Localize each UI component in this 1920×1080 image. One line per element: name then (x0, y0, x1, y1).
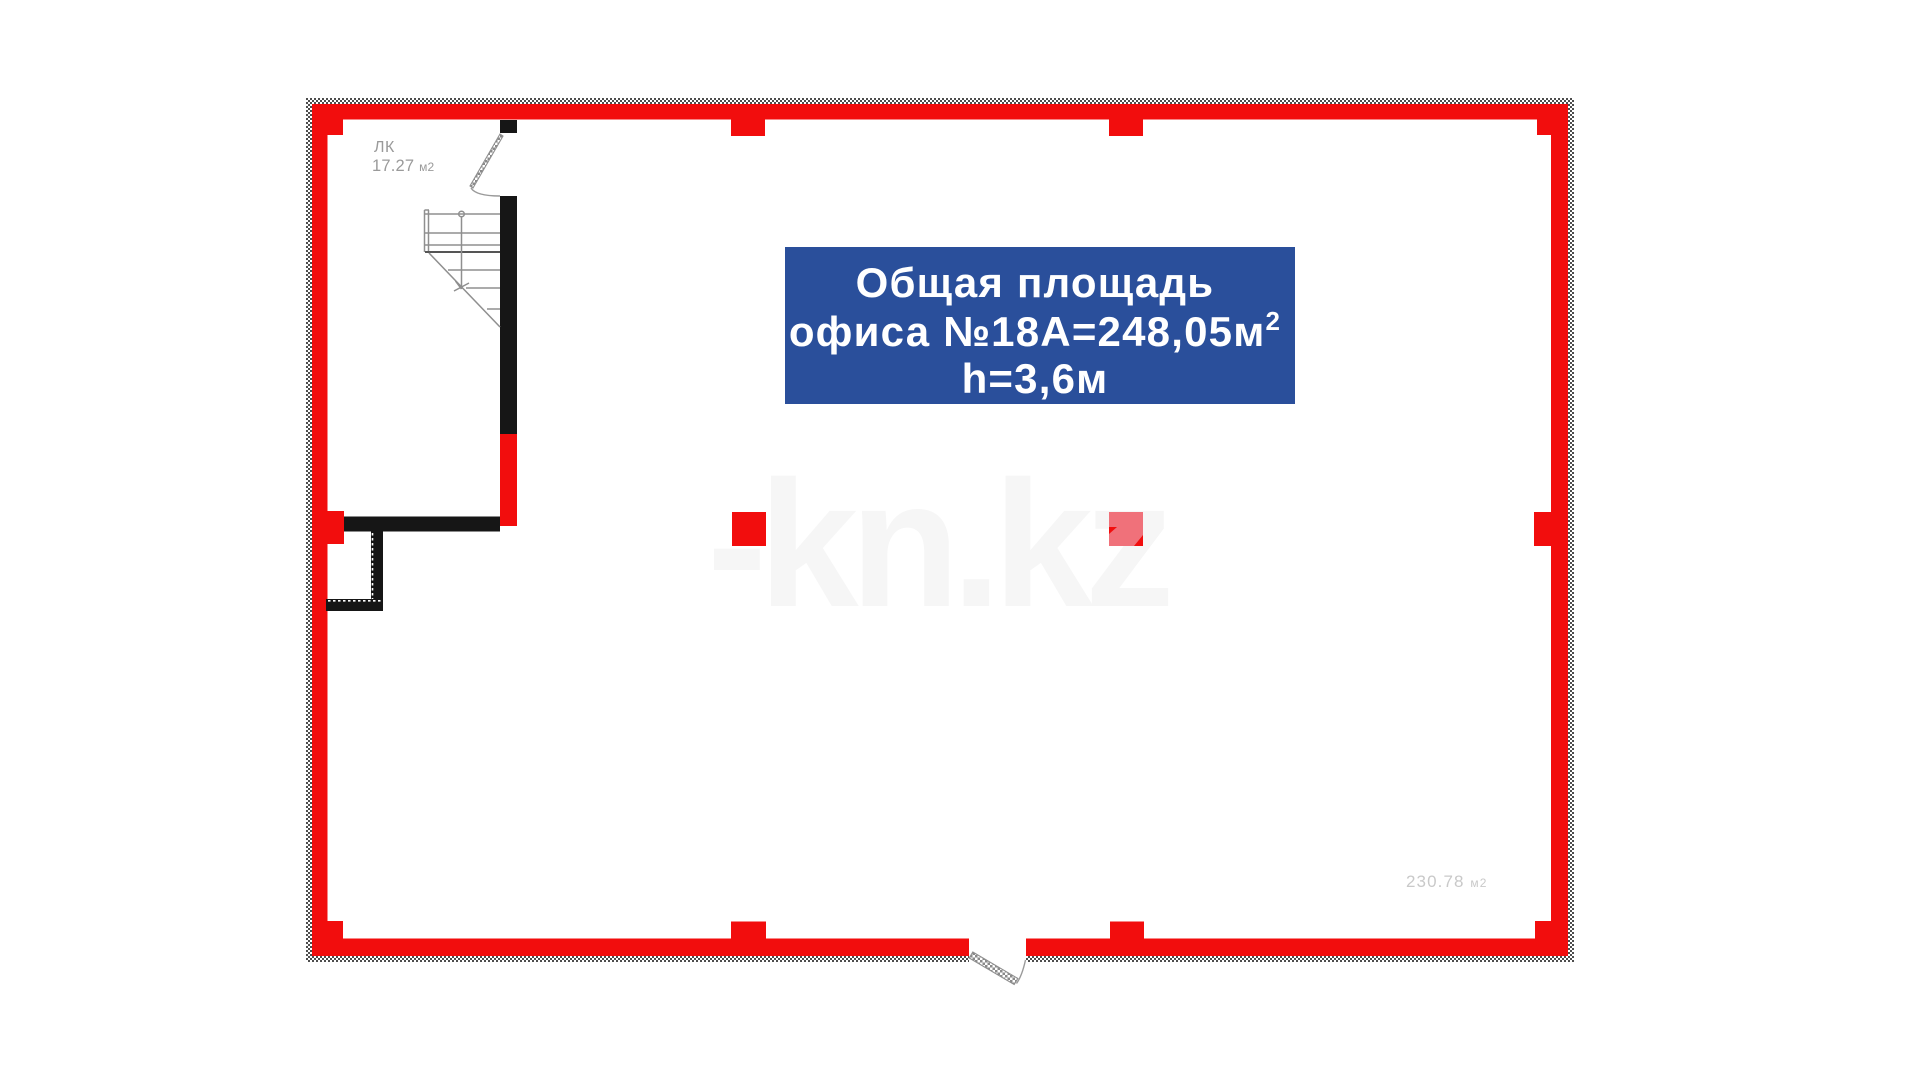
svg-text:Общая площадь: Общая площадь (856, 259, 1215, 306)
svg-text:-kn.kz: -kn.kz (707, 444, 1169, 645)
svg-text:ЛК: ЛК (374, 139, 395, 156)
svg-text:17.27 м2: 17.27 м2 (372, 157, 435, 175)
svg-text:h=3,6м: h=3,6м (962, 355, 1109, 402)
svg-text:офиса №18А=248,05м2: офиса №18А=248,05м2 (789, 306, 1281, 355)
